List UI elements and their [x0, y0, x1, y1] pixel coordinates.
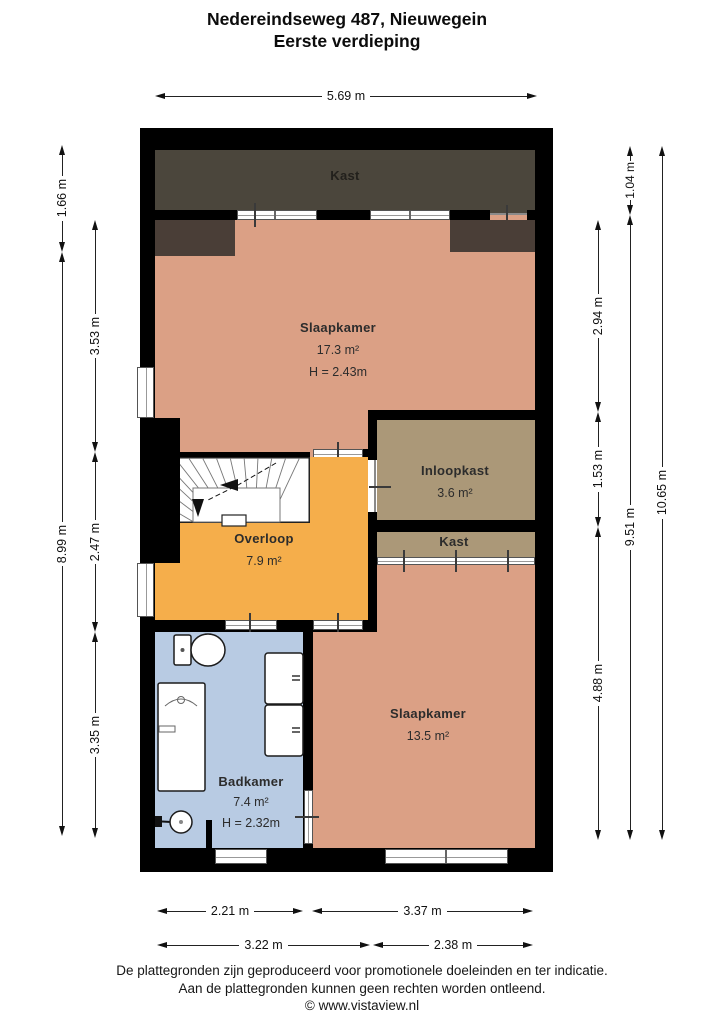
sliding-door-divider [274, 211, 276, 219]
sliding-door-divider [409, 211, 411, 219]
disclaimer: De plattegronden zijn geproduceerd voor … [0, 962, 724, 1015]
toilet-icon [174, 634, 225, 666]
shower-icon [155, 811, 192, 833]
address-title: Nedereindseweg 487, Nieuwegein [0, 8, 694, 30]
dim-left-inner-2: 2.47 m [88, 452, 102, 632]
knee-storage-left [155, 220, 235, 256]
dim-bottom2-right: 2.38 m [373, 938, 533, 952]
door-tick [507, 550, 509, 572]
page-title: Nedereindseweg 487, Nieuwegein Eerste ve… [0, 8, 694, 52]
dim-right-middle-1: 1.04 m [623, 146, 637, 215]
dim-left-outer-2: 8.99 m [55, 252, 69, 836]
knee-storage-right [450, 220, 535, 252]
dim-bottom1-right: 3.37 m [312, 904, 533, 918]
copyright-line: © www.vistaview.nl [0, 997, 724, 1015]
label-slaapkamer1: Slaapkamer 17.3 m² H = 2.43m [300, 317, 376, 383]
dim-bottom1-left: 2.21 m [157, 904, 303, 918]
window-left-overloop [137, 563, 154, 617]
window-bottom-badkamer [215, 849, 267, 864]
dim-right-inner-2: 1.53 m [591, 412, 605, 527]
door-badkamer [225, 620, 277, 630]
dim-right-inner-1: 2.94 m [591, 220, 605, 412]
dim-left-outer-1: 1.66 m [55, 145, 69, 252]
dim-right-outer-1: 10.65 m [655, 146, 669, 840]
label-slaapkamer2: Slaapkamer 13.5 m² [390, 703, 466, 747]
disclaimer-line2: Aan de plattegronden kunnen geen rechten… [0, 980, 724, 998]
label-overloop: Overloop 7.9 m² [234, 528, 293, 572]
floorplan-page: Nedereindseweg 487, Nieuwegein Eerste ve… [0, 0, 724, 1024]
dim-left-inner-3: 3.35 m [88, 632, 102, 838]
inloopkast-top-wall [368, 410, 535, 420]
dim-left-inner-1: 3.53 m [88, 220, 102, 452]
window-left-slaapkamer1 [137, 367, 154, 418]
door-tick [455, 550, 457, 572]
window-divider [445, 850, 447, 863]
label-kast-top: Kast [330, 165, 359, 187]
floor-subtitle: Eerste verdieping [0, 30, 694, 52]
stairs [158, 457, 310, 527]
label-badkamer: Badkamer 7.4 m² H = 2.32m [218, 771, 283, 834]
dim-bottom2-left: 3.22 m [157, 938, 370, 952]
door-tick [369, 486, 391, 488]
disclaimer-line1: De plattegronden zijn geproduceerd voor … [0, 962, 724, 980]
dim-right-inner-3: 4.88 m [591, 527, 605, 840]
room-slaapkamer2-floor-upper [377, 565, 535, 632]
dim-right-middle-2: 9.51 m [623, 215, 637, 840]
dim-top-width: 5.69 m [155, 89, 537, 103]
label-inloopkast: Inloopkast 3.6 m² [421, 460, 489, 504]
kast-opening-line [490, 213, 527, 215]
kast-sliding-door-left [237, 210, 317, 220]
washer-icons [265, 653, 303, 756]
label-kast2: Kast [439, 531, 468, 553]
bathtub-icon [158, 683, 205, 791]
door-tick [403, 550, 405, 572]
left-wall-thick [140, 418, 180, 563]
door-tick [254, 203, 256, 227]
wall-stub [527, 210, 535, 220]
